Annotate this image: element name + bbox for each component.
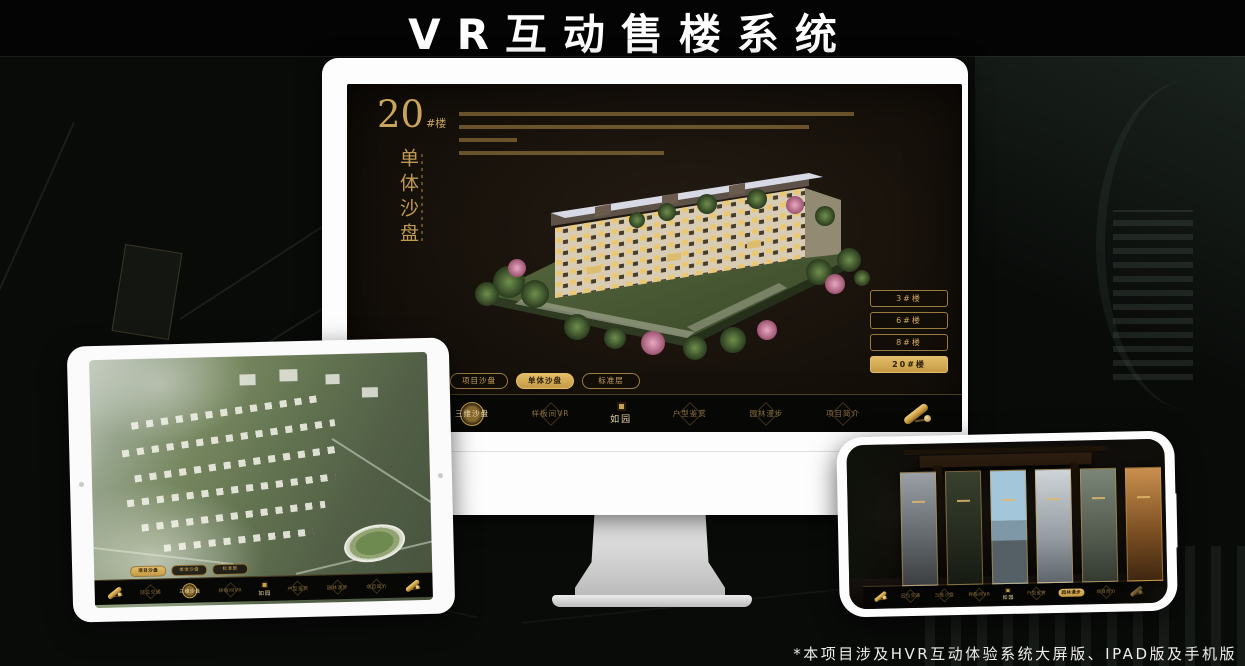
phone-device: 区位交通 三维沙盘 样板间VR 如园 户型鉴赏 园林漫步 项目简介 xyxy=(836,430,1178,617)
nav-item-3d-sandtable[interactable]: 三维沙盘 xyxy=(177,585,202,597)
aerial-building xyxy=(279,369,297,381)
gallery-panels xyxy=(900,467,1163,586)
nav-item-floorplans[interactable]: 户型鉴赏 xyxy=(1025,588,1049,598)
nav-item-floorplans[interactable]: 户型鉴赏 xyxy=(285,582,310,594)
tablet-mode-tab-group: 项目沙盘 单体沙盘 标准层 xyxy=(130,563,248,577)
gallery-panel[interactable] xyxy=(945,471,983,586)
monitor-base xyxy=(552,595,752,607)
tablet-device: 项目沙盘 单体沙盘 标准层 区位交通 三维沙盘 样板间VR 如园 户型鉴赏 园林… xyxy=(67,337,456,622)
floor-button-6[interactable]: 6#楼 xyxy=(870,312,948,329)
brand-logo: 如园 xyxy=(258,581,271,596)
floor-button-8[interactable]: 8#楼 xyxy=(870,334,948,351)
seal-icon xyxy=(617,402,626,411)
block-number: 20 xyxy=(377,93,424,136)
tab-standard-floor[interactable]: 标准层 xyxy=(212,563,248,575)
aerial-building xyxy=(325,374,339,384)
background-plaque xyxy=(111,244,182,340)
seal-icon xyxy=(1006,587,1011,592)
tab-single-sandtable[interactable]: 单体沙盘 xyxy=(516,373,574,389)
brand-logo: 如园 xyxy=(1002,587,1014,600)
floor-button-3[interactable]: 3#楼 xyxy=(870,290,948,307)
poster: VR互动售楼系统 20#楼 单体沙盘 xyxy=(0,0,1245,666)
nav-item-project-intro[interactable]: 项目简介 xyxy=(1094,587,1118,597)
tab-project-sandtable[interactable]: 项目沙盘 xyxy=(450,373,508,389)
gate-beam xyxy=(920,452,1092,468)
nav-item-3d-sandtable[interactable]: 三维沙盘 xyxy=(933,590,957,600)
block-subtitle: 单体沙盘 xyxy=(395,148,422,248)
nav-item-project-intro[interactable]: 项目简介 xyxy=(824,406,862,421)
page-title: VR互动售楼系统 xyxy=(0,1,1245,62)
nav-item-location[interactable]: 区位交通 xyxy=(138,586,163,598)
block-title: 20#楼 xyxy=(377,96,446,133)
footer-note: *本项目涉及HVR互动体验系统大屏版、IPAD版及手机版 xyxy=(793,643,1237,664)
gallery-panel[interactable] xyxy=(1125,467,1163,582)
gallery-panel[interactable] xyxy=(900,471,938,586)
scroll-icon[interactable] xyxy=(1128,584,1144,598)
nav-item-3d-sandtable[interactable]: 三维沙盘 xyxy=(453,406,491,421)
nav-item-project-intro[interactable]: 项目简介 xyxy=(364,580,389,592)
phone-notch xyxy=(1166,493,1177,547)
floor-button-20[interactable]: 20#楼 xyxy=(870,356,948,373)
nav-item-garden-walk[interactable]: 园林漫步 xyxy=(747,406,785,421)
aerial-building xyxy=(362,387,378,397)
gallery-panel[interactable] xyxy=(1080,468,1118,583)
gallery-panel[interactable] xyxy=(1035,469,1073,584)
nav-item-location[interactable]: 区位交通 xyxy=(899,591,923,601)
background-map-road xyxy=(0,122,75,388)
aerial-road xyxy=(89,546,233,565)
mode-tab-group: 项目沙盘 单体沙盘 标准层 xyxy=(450,373,640,389)
floor-button-group: 3#楼 6#楼 8#楼 20#楼 xyxy=(870,290,948,373)
tab-project-sandtable[interactable]: 项目沙盘 xyxy=(130,565,166,577)
phone-screen: 区位交通 三维沙盘 样板间VR 如园 户型鉴赏 园林漫步 项目简介 xyxy=(846,439,1167,610)
block-suffix: #楼 xyxy=(426,117,446,130)
nav-item-garden-walk[interactable]: 园林漫步 xyxy=(325,581,350,593)
background-buildings xyxy=(1113,210,1193,380)
tablet-home-dot xyxy=(438,473,443,478)
scroll-icon[interactable] xyxy=(901,401,933,427)
tab-single-sandtable[interactable]: 单体沙盘 xyxy=(171,564,207,576)
aerial-building xyxy=(239,374,255,385)
nav-item-showroom-vr[interactable]: 样板间VR xyxy=(530,406,572,421)
monitor-stand xyxy=(575,513,725,598)
tab-standard-floor[interactable]: 标准层 xyxy=(582,373,640,389)
tablet-screen: 项目沙盘 单体沙盘 标准层 区位交通 三维沙盘 样板间VR 如园 户型鉴赏 园林… xyxy=(89,352,433,608)
aerial-building-row xyxy=(141,501,325,532)
seal-icon xyxy=(262,581,268,587)
tablet-camera-dot xyxy=(79,482,84,487)
scroll-icon[interactable] xyxy=(106,584,124,600)
aerial-road xyxy=(332,438,433,510)
gallery-panel[interactable] xyxy=(990,470,1028,585)
brand-logo: 如园 xyxy=(610,402,632,425)
subtitle-side-marks xyxy=(421,154,423,244)
scroll-icon[interactable] xyxy=(872,589,888,603)
building-3d-model-view[interactable] xyxy=(457,142,887,377)
aerial-building-row xyxy=(164,528,314,552)
nav-item-garden-walk[interactable]: 园林漫步 xyxy=(1058,588,1084,597)
scroll-icon[interactable] xyxy=(403,577,421,593)
nav-item-floorplans[interactable]: 户型鉴赏 xyxy=(671,406,709,421)
nav-item-showroom-vr[interactable]: 样板间VR xyxy=(966,589,992,600)
nav-item-showroom-vr[interactable]: 样板间VR xyxy=(216,584,244,596)
